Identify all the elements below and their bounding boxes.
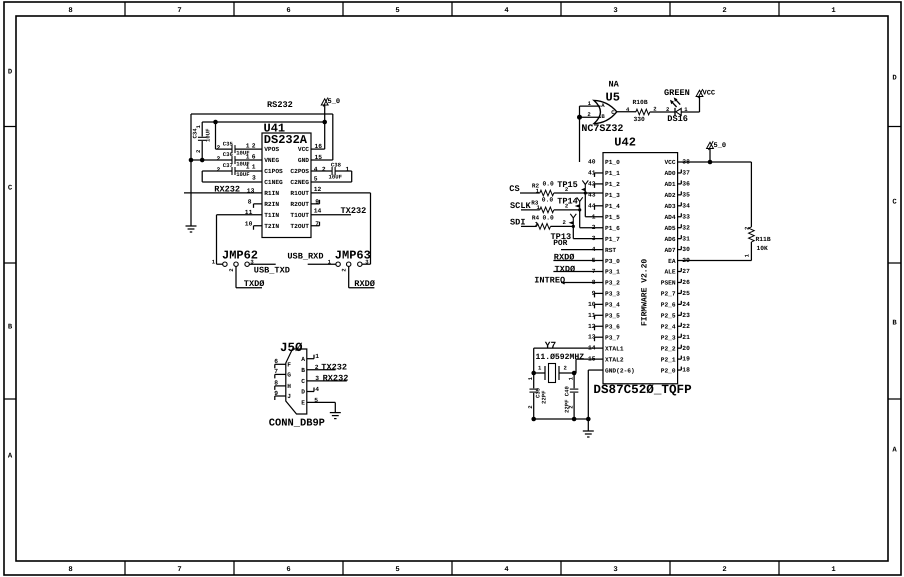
svg-text:AD7: AD7 (664, 247, 675, 254)
svg-text:27: 27 (682, 268, 690, 275)
svg-text:330: 330 (634, 116, 646, 123)
svg-text:POR: POR (553, 239, 567, 248)
svg-text:TX232: TX232 (341, 206, 367, 216)
svg-text:D: D (8, 69, 13, 77)
svg-text:P2_6: P2_6 (661, 302, 676, 309)
svg-text:B: B (892, 320, 897, 328)
svg-text:D: D (301, 389, 305, 396)
svg-text:2: 2 (217, 166, 221, 173)
svg-text:8: 8 (68, 566, 72, 574)
svg-text:C: C (892, 199, 897, 207)
svg-text:P1_1: P1_1 (605, 170, 620, 177)
svg-text:21: 21 (682, 334, 690, 341)
svg-text:G: G (287, 372, 291, 379)
svg-text:10: 10 (245, 221, 253, 228)
svg-text:Y7: Y7 (545, 340, 557, 351)
svg-text:GND(2-6): GND(2-6) (605, 367, 635, 374)
svg-text:DS16: DS16 (667, 114, 688, 124)
svg-text:T1IN: T1IN (264, 212, 279, 219)
svg-text:XTAL1: XTAL1 (605, 345, 624, 352)
svg-text:P3_1: P3_1 (605, 269, 620, 276)
svg-text:T2OUT: T2OUT (290, 223, 309, 230)
svg-text:P3_3: P3_3 (605, 291, 620, 298)
svg-text:16: 16 (315, 143, 323, 150)
svg-text:RS232: RS232 (267, 100, 293, 110)
svg-text:22PF: 22PF (541, 390, 548, 404)
svg-text:2: 2 (315, 364, 319, 371)
svg-text:VCC: VCC (664, 159, 675, 166)
svg-text:AD3: AD3 (664, 203, 675, 210)
svg-text:C2POS: C2POS (290, 168, 309, 175)
svg-text:P1_4: P1_4 (605, 203, 620, 210)
svg-text:C1POS: C1POS (264, 168, 283, 175)
svg-text:1: 1 (246, 154, 250, 161)
svg-text:P1_5: P1_5 (605, 214, 620, 221)
svg-text:VNEG: VNEG (264, 157, 279, 164)
svg-text:3: 3 (613, 7, 617, 15)
svg-text:3: 3 (613, 566, 617, 574)
svg-text:1: 1 (831, 7, 836, 15)
svg-text:USB_RXD: USB_RXD (287, 251, 323, 261)
svg-text:C1NEG: C1NEG (264, 179, 283, 186)
svg-text:3: 3 (252, 174, 256, 181)
svg-text:20: 20 (682, 345, 690, 352)
svg-text:5_0: 5_0 (714, 142, 727, 150)
svg-text:5: 5 (395, 566, 399, 574)
svg-text:PSEN: PSEN (661, 280, 676, 287)
svg-text:A: A (301, 356, 305, 363)
svg-text:4: 4 (504, 566, 509, 574)
svg-text:12: 12 (314, 186, 322, 193)
svg-text:15: 15 (315, 154, 323, 161)
svg-text:P1_2: P1_2 (605, 181, 620, 188)
svg-text:R10B: R10B (633, 99, 648, 106)
svg-text:P2_3: P2_3 (661, 334, 676, 341)
svg-text:7: 7 (177, 566, 181, 574)
svg-text:RX232: RX232 (214, 184, 240, 194)
svg-text:T1OUT: T1OUT (290, 212, 309, 219)
svg-text:2: 2 (722, 566, 726, 574)
svg-text:P3_7: P3_7 (605, 334, 620, 341)
svg-text:33: 33 (682, 213, 690, 220)
svg-text:4: 4 (314, 166, 318, 173)
svg-text:2: 2 (252, 143, 256, 150)
svg-text:10K: 10K (757, 245, 769, 252)
svg-text:5: 5 (314, 175, 318, 182)
svg-text:P1_3: P1_3 (605, 192, 620, 199)
svg-text:C: C (301, 378, 305, 385)
svg-text:CS: CS (509, 184, 519, 194)
svg-text:P2_0: P2_0 (661, 367, 676, 374)
svg-text:USB_TXD: USB_TXD (254, 265, 290, 275)
svg-text:RST: RST (605, 247, 616, 254)
svg-text:INTREQ: INTREQ (534, 275, 565, 285)
svg-text:E: E (301, 400, 305, 407)
svg-text:P1_7: P1_7 (605, 236, 620, 243)
svg-text:TXDØ: TXDØ (555, 265, 576, 275)
svg-text:AD2: AD2 (664, 192, 675, 199)
svg-text:P2_7: P2_7 (661, 291, 676, 298)
svg-text:1: 1 (831, 566, 836, 574)
svg-text:P3_6: P3_6 (605, 323, 620, 330)
svg-text:P2_5: P2_5 (661, 313, 676, 320)
svg-text:AD5: AD5 (664, 225, 675, 232)
svg-text:5_0: 5_0 (328, 98, 341, 106)
svg-text:R1OUT: R1OUT (290, 190, 309, 197)
svg-text:TXDØ: TXDØ (244, 279, 265, 289)
svg-text:H: H (287, 383, 291, 390)
svg-text:36: 36 (682, 181, 690, 188)
svg-text:11: 11 (245, 209, 253, 216)
svg-text:9: 9 (315, 198, 319, 205)
svg-text:9: 9 (274, 390, 278, 397)
svg-text:R2OUT: R2OUT (290, 201, 309, 208)
svg-text:P3_0: P3_0 (605, 258, 620, 265)
svg-text:P2_4: P2_4 (661, 323, 676, 330)
svg-text:P3_4: P3_4 (605, 302, 620, 309)
svg-text:XTAL2: XTAL2 (605, 356, 624, 363)
svg-text:RX232: RX232 (323, 373, 349, 383)
svg-text:14: 14 (314, 208, 322, 215)
svg-text:0.0: 0.0 (543, 215, 555, 222)
svg-text:B: B (301, 367, 305, 374)
svg-text:22: 22 (682, 323, 690, 330)
svg-text:U5: U5 (606, 91, 620, 105)
svg-text:AD6: AD6 (664, 236, 675, 243)
svg-text:5: 5 (395, 7, 399, 15)
svg-text:8: 8 (274, 380, 278, 387)
svg-text:EA: EA (668, 258, 676, 265)
svg-text:AD4: AD4 (664, 214, 675, 221)
svg-text:4: 4 (315, 386, 319, 393)
svg-text:6: 6 (274, 358, 278, 365)
svg-text:2: 2 (217, 156, 221, 163)
svg-text:31: 31 (682, 235, 690, 242)
svg-text:P2_1: P2_1 (661, 356, 676, 363)
svg-text:2: 2 (322, 166, 326, 173)
svg-text:R2IN: R2IN (264, 201, 279, 208)
svg-text:C37: C37 (223, 162, 233, 169)
svg-text:5: 5 (314, 397, 318, 404)
svg-text:32: 32 (682, 224, 690, 231)
svg-text:C2NEG: C2NEG (290, 179, 309, 186)
svg-text:F: F (287, 362, 291, 369)
svg-text:6: 6 (252, 154, 256, 161)
svg-text:ALE: ALE (664, 269, 675, 276)
svg-text:1: 1 (315, 353, 319, 360)
svg-text:13: 13 (247, 187, 255, 194)
svg-text:1: 1 (246, 163, 250, 170)
svg-text:8: 8 (248, 198, 252, 205)
svg-text:7: 7 (315, 220, 319, 227)
svg-text:P1_6: P1_6 (605, 225, 620, 232)
svg-text:10UF: 10UF (236, 171, 250, 178)
svg-text:30: 30 (682, 246, 690, 253)
svg-text:RXDØ: RXDØ (354, 279, 375, 289)
svg-text:1: 1 (346, 166, 350, 173)
svg-text:1: 1 (246, 143, 250, 150)
svg-text:10UF: 10UF (205, 128, 212, 142)
svg-text:11.Ø592MHZ: 11.Ø592MHZ (536, 353, 585, 362)
svg-text:2: 2 (217, 145, 221, 152)
svg-text:P3_5: P3_5 (605, 313, 620, 320)
svg-text:C35: C35 (223, 140, 234, 147)
svg-text:FIRMWARE V2.20: FIRMWARE V2.20 (641, 259, 650, 326)
svg-text:37: 37 (682, 170, 690, 177)
svg-text:A: A (8, 453, 13, 461)
svg-text:2: 2 (722, 7, 726, 15)
svg-text:C38: C38 (331, 161, 342, 168)
svg-text:6: 6 (286, 7, 290, 15)
svg-text:AD0: AD0 (664, 170, 675, 177)
svg-text:TX232: TX232 (321, 362, 347, 372)
svg-text:P2_2: P2_2 (661, 345, 676, 352)
svg-text:34: 34 (682, 202, 690, 209)
svg-text:26: 26 (682, 279, 690, 286)
svg-text:23: 23 (682, 312, 690, 319)
svg-text:B: B (8, 324, 13, 332)
svg-text:35: 35 (682, 191, 690, 198)
svg-text:NA: NA (609, 80, 620, 90)
svg-text:P1_0: P1_0 (605, 159, 620, 166)
svg-text:0.0: 0.0 (543, 181, 555, 188)
svg-text:NC7SZ32: NC7SZ32 (581, 124, 623, 135)
svg-text:19: 19 (682, 356, 690, 363)
svg-text:R1IN: R1IN (264, 190, 279, 197)
svg-text:VPOS: VPOS (264, 146, 279, 153)
svg-text:R11B: R11B (756, 236, 771, 243)
svg-text:C: C (8, 185, 13, 193)
svg-text:CONN_DB9P: CONN_DB9P (269, 417, 325, 429)
svg-text:T2IN: T2IN (264, 223, 279, 230)
svg-text:C36: C36 (223, 151, 234, 158)
svg-text:A: A (892, 447, 897, 455)
svg-text:1: 1 (252, 163, 256, 170)
svg-text:25: 25 (682, 290, 690, 297)
svg-text:D: D (892, 75, 897, 83)
svg-text:DS232A: DS232A (264, 133, 308, 147)
svg-text:P3_2: P3_2 (605, 280, 620, 287)
svg-text:8: 8 (68, 7, 72, 15)
svg-text:AD1: AD1 (664, 181, 675, 188)
svg-text:VCC: VCC (703, 90, 716, 98)
svg-text:7: 7 (177, 7, 181, 15)
svg-text:DS87C52Ø_TQFP: DS87C52Ø_TQFP (593, 383, 692, 397)
svg-text:24: 24 (682, 301, 690, 308)
svg-text:40: 40 (588, 159, 596, 166)
svg-text:VCC: VCC (298, 146, 309, 153)
svg-text:18: 18 (682, 367, 690, 374)
svg-text:6: 6 (286, 566, 290, 574)
svg-text:10UF: 10UF (329, 173, 343, 180)
svg-text:7: 7 (274, 368, 278, 375)
svg-text:4: 4 (504, 7, 509, 15)
svg-text:0.0: 0.0 (542, 197, 554, 204)
svg-text:3: 3 (315, 375, 319, 382)
svg-text:GREEN: GREEN (664, 88, 690, 98)
svg-text:GND: GND (298, 157, 309, 164)
svg-text:U42: U42 (614, 136, 636, 150)
svg-text:J: J (287, 393, 291, 400)
svg-text:J5Ø: J5Ø (280, 341, 303, 355)
